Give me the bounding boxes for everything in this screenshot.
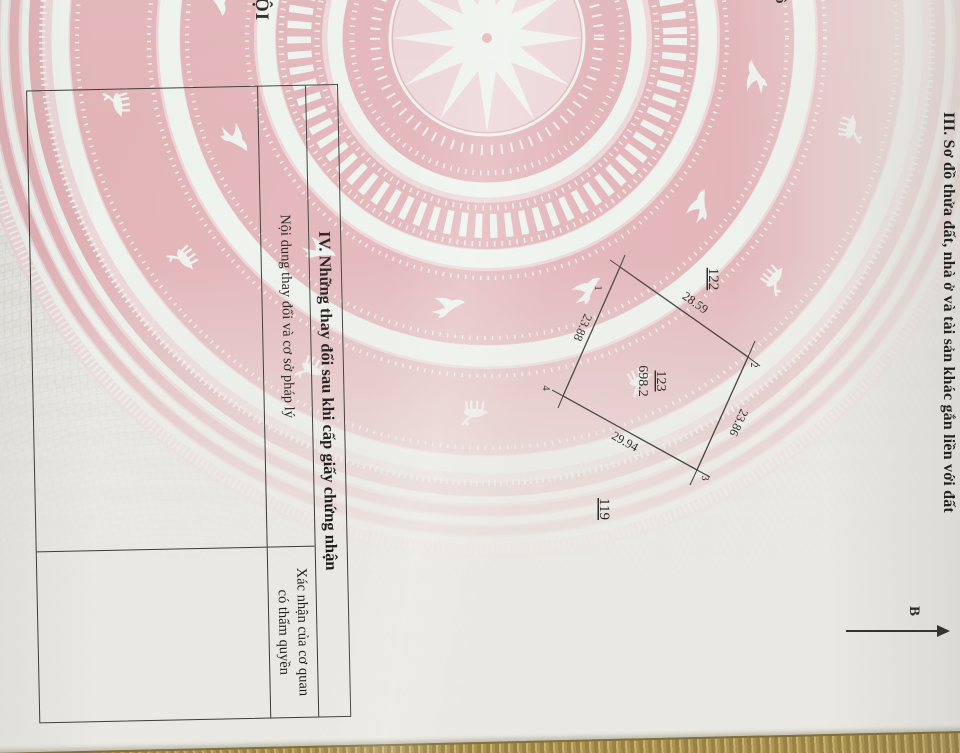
north-arrow-shaft bbox=[846, 630, 938, 632]
edge-length-right: 23.86 bbox=[726, 407, 751, 438]
section-iii-heading: III. Sơ đồ thửa đất, nhà ở và tài sản kh… bbox=[939, 112, 957, 572]
edge-length-left: 23.88 bbox=[571, 312, 595, 343]
parcel-area: 698.2 bbox=[635, 365, 650, 397]
parcel-diagram: 1 2 3 4 28.59 23.86 29.94 23.88 122 123 … bbox=[530, 230, 780, 550]
adjacent-page-text-fragment-small: ồ bbox=[771, 0, 788, 4]
neighbor-parcel-122: 122 bbox=[705, 268, 721, 291]
content-changes-empty-cell bbox=[27, 87, 267, 552]
vertex-label-1: 1 bbox=[592, 285, 603, 290]
vertex-label-2: 2 bbox=[748, 362, 759, 367]
north-label: B bbox=[905, 606, 922, 616]
vertex-label-4: 4 bbox=[540, 385, 551, 391]
edge-length-bottom: 29.94 bbox=[609, 429, 641, 455]
authority-empty-cell bbox=[37, 548, 271, 723]
north-arrow: B bbox=[842, 598, 952, 658]
authority-header-line1: Xác nhận của cơ quan bbox=[292, 567, 314, 696]
parcel-number: 123 bbox=[653, 371, 668, 392]
neighbor-parcel-119: 119 bbox=[596, 498, 612, 520]
column-content-changes: Nội dung thay đổi và cơ sở pháp lý bbox=[27, 86, 315, 553]
north-arrow-icon bbox=[937, 625, 950, 637]
authority-header-line2: có thẩm quyền bbox=[273, 589, 294, 675]
column-authority: Xác nhận của cơ quan có thẩm quyền bbox=[37, 547, 318, 723]
certificate-photo: III. Sơ đồ thửa đất, nhà ở và tài sản kh… bbox=[0, 0, 960, 753]
certificate-page: III. Sơ đồ thửa đất, nhà ở và tài sản kh… bbox=[0, 0, 960, 753]
column-header-authority: Xác nhận của cơ quan có thẩm quyền bbox=[267, 547, 319, 718]
column-header-content-changes: Nội dung thay đổi và cơ sở pháp lý bbox=[257, 86, 315, 547]
adjacent-page-text-fragment: ỘI bbox=[250, 0, 272, 21]
vertex-label-3: 3 bbox=[699, 475, 710, 480]
changes-table: IV. Những thay đổi sau khi cấp giấy chứn… bbox=[26, 84, 351, 723]
